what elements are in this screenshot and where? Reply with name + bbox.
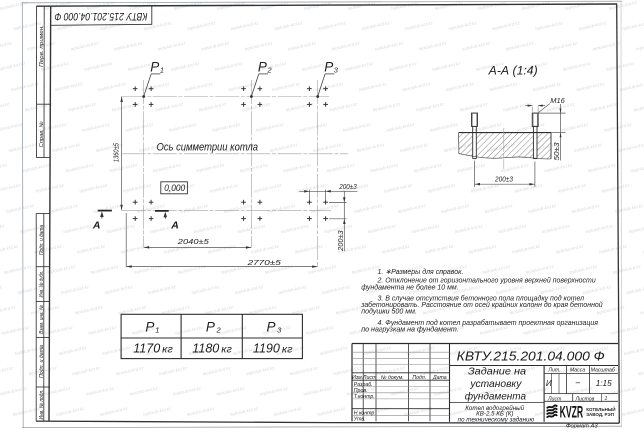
svg-text:KVZR: KVZR [560,402,584,421]
svg-text:Пров.: Пров. [354,388,368,394]
svg-text:по нагрузкам на фундамент.: по нагрузкам на фундамент. [361,325,459,334]
svg-text:P: P [150,60,159,75]
svg-text:P: P [145,320,154,335]
svg-text:Подп. и дата: Подп. и дата [39,345,45,378]
svg-text:Задание на: Задание на [468,366,526,377]
svg-text:Инв. № подл.: Инв. № подл. [39,390,45,420]
svg-text:P: P [324,60,333,75]
svg-text:ЗАВОД, РЭП: ЗАВОД, РЭП [586,412,614,417]
svg-text:А: А [170,220,179,232]
svg-text:КВТУ 215.201.04.000 Ф: КВТУ 215.201.04.000 Ф [54,10,147,22]
svg-text:1190: 1190 [253,340,281,355]
svg-text:Подп. и дата: Подп. и дата [39,225,45,255]
svg-text:Лит.: Лит. [547,368,560,374]
svg-text:кг: кг [282,344,293,355]
svg-text:Утв.: Утв. [354,417,366,423]
svg-text:подушки 500 мм.: подушки 500 мм. [361,307,417,316]
svg-text:200±3: 200±3 [336,230,345,252]
svg-text:P: P [258,60,267,75]
svg-text:А: А [92,220,101,232]
svg-text:2040±5: 2040±5 [177,237,210,246]
svg-text:Формат А3: Формат А3 [566,423,598,429]
svg-text:1:15: 1:15 [596,379,612,388]
svg-text:2770±5: 2770±5 [246,258,282,267]
svg-text:Дата: Дата [432,375,447,381]
svg-text:Взам. инв. №: Взам. инв. № [39,305,45,334]
svg-text:Подп.: Подп. [412,375,426,381]
svg-text:кг: кг [221,344,232,355]
svg-text:кг: кг [162,344,173,355]
svg-text:P: P [267,320,276,335]
svg-text:–: – [575,378,581,387]
svg-text:№ докум.: № докум. [381,375,404,381]
svg-text:1: 1 [605,396,608,402]
svg-text:1: 1 [155,326,159,335]
svg-text:Изм.: Изм. [352,375,363,381]
svg-text:фундамента: фундамента [465,391,526,403]
svg-text:установку: установку [469,379,522,390]
svg-text:Т.контр.: Т.контр. [354,394,375,400]
svg-text:И: И [546,379,552,388]
svg-text:Инв. № дубл.: Инв. № дубл. [39,271,45,298]
svg-text:200±3: 200±3 [338,182,357,191]
svg-text:50±3: 50±3 [552,142,561,161]
svg-text:Масса: Масса [570,368,585,374]
svg-text:Лист: Лист [362,375,377,381]
svg-text:2: 2 [216,326,221,335]
svg-text:2: 2 [267,66,272,75]
svg-text:Ось симметрии котла: Ось симметрии котла [157,141,259,153]
svg-text:P: P [206,320,215,335]
svg-text:по техническому заданию: по техническому заданию [458,416,535,423]
svg-text:0,000: 0,000 [164,183,185,193]
svg-text:Разраб.: Разраб. [354,382,373,388]
svg-text:А-А (1:4): А-А (1:4) [488,63,538,77]
svg-text:1: 1 [160,66,164,75]
svg-text:Перв. примен.: Перв. примен. [39,25,45,67]
svg-text:КВТУ.215.201.04.000 Ф: КВТУ.215.201.04.000 Ф [457,348,605,363]
svg-text:200±3: 200±3 [494,174,514,183]
svg-text:1360±5: 1360±5 [111,142,120,162]
svg-text:1180: 1180 [192,340,220,355]
svg-text:Справ. №: Справ. № [39,121,45,147]
svg-text:Масштаб: Масштаб [591,368,616,374]
svg-text:1170: 1170 [133,340,161,355]
svg-text:М16: М16 [550,96,565,105]
svg-text:фундамента не более 10 мм.: фундамента не более 10 мм. [361,283,459,292]
